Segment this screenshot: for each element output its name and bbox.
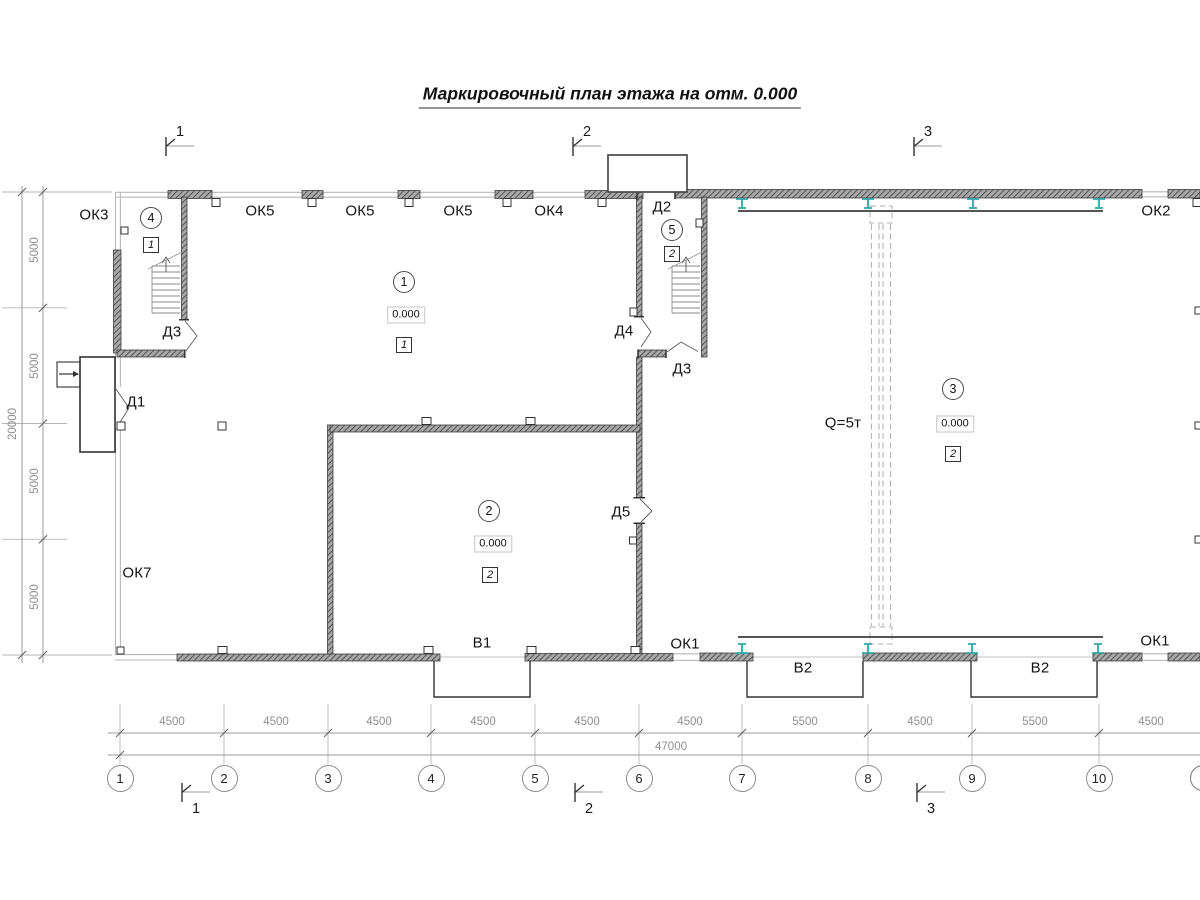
crane-capacity-label: Q=5т bbox=[825, 415, 861, 432]
gate-label-v2-1: В2 bbox=[794, 660, 813, 677]
crane-rails bbox=[738, 211, 1103, 637]
window-label-ok5-2: ОК5 bbox=[345, 203, 374, 220]
dim-left-1: 5000 bbox=[29, 237, 41, 263]
pilaster-tabs bbox=[117, 199, 1200, 655]
door-label-d2: Д2 bbox=[653, 199, 672, 216]
dim-bottom-9: 5500 bbox=[1022, 716, 1048, 728]
walls-hatched bbox=[114, 190, 1200, 662]
crane-bridge-dashed bbox=[870, 206, 892, 644]
steel-column-icons bbox=[736, 199, 1105, 653]
section-mark-top-1: 1 bbox=[176, 124, 184, 140]
window-label-ok3: ОК3 bbox=[79, 207, 108, 224]
grid-bubble-6: 6 bbox=[626, 765, 653, 792]
door-label-d1: Д1 bbox=[127, 394, 146, 411]
stairs bbox=[148, 251, 704, 313]
door-label-d4: Д4 bbox=[615, 323, 634, 340]
grid-bubble-5: 5 bbox=[522, 765, 549, 792]
room-elevation-2: 0.000 bbox=[474, 536, 512, 553]
grid-bubble-8: 8 bbox=[855, 765, 882, 792]
room-type-1: 1 bbox=[396, 337, 412, 353]
dimension-lines bbox=[22, 186, 1200, 755]
grid-bubble-1: 1 bbox=[107, 765, 134, 792]
dim-bottom-2: 4500 bbox=[263, 716, 289, 728]
window-label-ok7: ОК7 bbox=[122, 565, 151, 582]
dim-bottom-3: 4500 bbox=[366, 716, 392, 728]
grid-bubble-10: 10 bbox=[1086, 765, 1113, 792]
dim-bottom-6: 4500 bbox=[677, 716, 703, 728]
dim-bottom-10: 4500 bbox=[1138, 716, 1164, 728]
entrance-porch bbox=[57, 357, 115, 452]
grid-bubble-4: 4 bbox=[418, 765, 445, 792]
room-number-4: 4 bbox=[140, 207, 162, 229]
section-mark-bottom-2: 2 bbox=[585, 801, 593, 817]
grid-bubble-clipped bbox=[1191, 766, 1200, 791]
section-mark-bottom-1: 1 bbox=[192, 801, 200, 817]
window-label-ok5-3: ОК5 bbox=[443, 203, 472, 220]
grid-bubble-7: 7 bbox=[729, 765, 756, 792]
dim-bottom-total: 47000 bbox=[655, 741, 687, 753]
vestibule-bumpout bbox=[608, 155, 687, 192]
grid-bubble-2: 2 bbox=[211, 765, 238, 792]
dim-bottom-5: 4500 bbox=[574, 716, 600, 728]
dim-left-total: 20000 bbox=[7, 408, 19, 440]
section-mark-bottom-3: 3 bbox=[927, 801, 935, 817]
drawing-title: Маркировочный план этажа на отм. 0.000 bbox=[419, 84, 801, 109]
room-type-5: 2 bbox=[664, 246, 680, 262]
door-label-d3-2: Д3 bbox=[673, 361, 692, 378]
room-elevation-3: 0.000 bbox=[936, 416, 974, 433]
gate-label-v1: В1 bbox=[473, 635, 492, 652]
dim-left-4: 5000 bbox=[29, 584, 41, 610]
room-number-1: 1 bbox=[393, 271, 415, 293]
window-label-ok1-2: ОК1 bbox=[1140, 633, 1169, 650]
room-number-5: 5 bbox=[661, 219, 683, 241]
window-label-ok1-1: ОК1 bbox=[670, 636, 699, 653]
room-type-2: 2 bbox=[482, 567, 498, 583]
dim-bottom-7: 5500 bbox=[792, 716, 818, 728]
dim-bottom-8: 4500 bbox=[907, 716, 933, 728]
dim-bottom-4: 4500 bbox=[470, 716, 496, 728]
section-mark-top-2: 2 bbox=[583, 124, 591, 140]
wall-end-caps bbox=[179, 189, 675, 523]
room-type-3: 2 bbox=[945, 446, 961, 462]
gate-label-v2-2: В2 bbox=[1031, 660, 1050, 677]
window-label-ok2: ОК2 bbox=[1141, 203, 1170, 220]
window-label-ok5-1: ОК5 bbox=[245, 203, 274, 220]
entrance-arrow-icon bbox=[73, 371, 79, 377]
section-mark-top-3: 3 bbox=[924, 124, 932, 140]
gate-leaves bbox=[434, 661, 1097, 697]
room-elevation-1: 0.000 bbox=[387, 307, 425, 324]
dim-left-2: 5000 bbox=[29, 353, 41, 379]
dimension-ticks bbox=[18, 188, 1103, 759]
dim-left-3: 5000 bbox=[29, 468, 41, 494]
room-number-3: 3 bbox=[942, 378, 964, 400]
room-type-4: 1 bbox=[143, 237, 159, 253]
floor-plan-drawing: Маркировочный план этажа на отм. 0.000 О… bbox=[0, 0, 1200, 900]
section-mark-icons bbox=[166, 137, 945, 802]
door-label-d5: Д5 bbox=[612, 504, 631, 521]
grid-bubble-3: 3 bbox=[315, 765, 342, 792]
dim-bottom-1: 4500 bbox=[159, 716, 185, 728]
door-label-d3-1: Д3 bbox=[163, 324, 182, 341]
grid-bubble-9: 9 bbox=[959, 765, 986, 792]
room-number-2: 2 bbox=[478, 500, 500, 522]
window-label-ok4: ОК4 bbox=[534, 203, 563, 220]
